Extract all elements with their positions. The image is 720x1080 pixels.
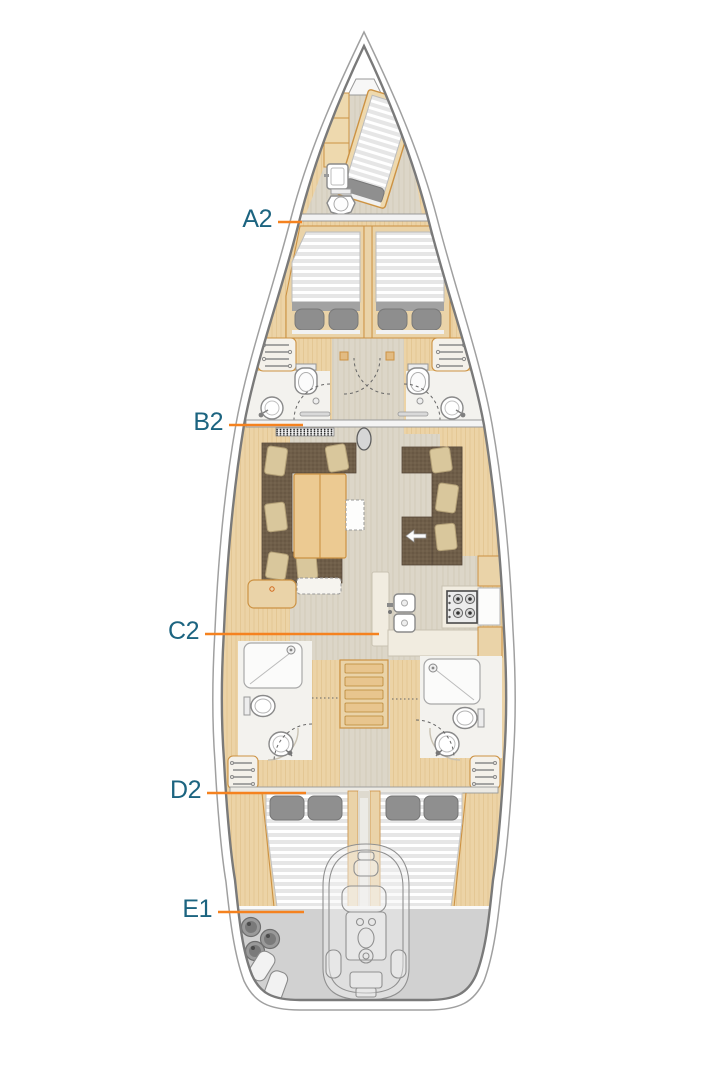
bow-sink-icon xyxy=(324,164,348,189)
stove-icon xyxy=(447,591,477,623)
settee-pillow xyxy=(325,443,349,472)
settee-pillow xyxy=(265,552,289,581)
engine-tender-ghost xyxy=(323,844,409,1000)
port-cabinet xyxy=(248,580,296,608)
aft-pillow xyxy=(386,796,420,820)
door-post xyxy=(386,352,394,360)
stbd-aft-wardrobe xyxy=(470,756,500,789)
stbd-head-toilet-icon xyxy=(407,364,429,394)
label-d2: D2 xyxy=(170,776,201,804)
aft-pillow xyxy=(270,796,304,820)
shower-rail xyxy=(398,412,428,416)
label-a2: A2 xyxy=(242,205,272,233)
deck-plan-page: A2 B2 C2 D2 E1 xyxy=(0,0,720,1080)
stbd-aft-toilet-icon xyxy=(453,708,484,729)
stbd-sofa-seat xyxy=(402,517,432,565)
settee-pillow xyxy=(264,446,288,477)
settee-pillow xyxy=(435,483,459,514)
label-e1: E1 xyxy=(182,895,212,923)
companionway-stairs xyxy=(340,660,388,728)
port-berth-mattress xyxy=(292,232,360,302)
shower-drain-icon xyxy=(417,398,423,404)
aft-pillow xyxy=(424,796,458,820)
bow-toilet-icon xyxy=(327,189,355,215)
berth-divider xyxy=(364,226,372,338)
sideboard-vent xyxy=(276,428,334,436)
galley-counter xyxy=(388,630,480,656)
fridge xyxy=(478,588,500,625)
shower-drain-icon xyxy=(313,398,319,404)
mast-post xyxy=(357,428,371,450)
label-c2: C2 xyxy=(168,617,199,645)
port-aft-toilet-icon xyxy=(244,696,275,717)
settee-pillow xyxy=(435,523,458,551)
port-shower xyxy=(244,643,302,688)
stbd-shower xyxy=(424,659,480,704)
bulkhead-a xyxy=(296,214,434,221)
berth-pillow xyxy=(412,309,441,330)
salon-pouf xyxy=(297,578,341,594)
port-head-toilet-icon xyxy=(295,364,317,394)
berth-pillow xyxy=(329,309,358,330)
door-post xyxy=(340,352,348,360)
port-aft-wardrobe xyxy=(228,756,258,789)
berth-pillow xyxy=(378,309,407,330)
berth-pillow xyxy=(295,309,324,330)
deck-plan-svg: A2 B2 C2 D2 E1 xyxy=(0,0,720,1080)
label-b2: B2 xyxy=(193,408,223,436)
table-extension xyxy=(346,500,364,530)
aft-pillow xyxy=(308,796,342,820)
shower-rail xyxy=(300,412,330,416)
galley-locker xyxy=(478,627,502,657)
settee-pillow xyxy=(429,447,452,474)
forward-cabin xyxy=(286,226,450,338)
settee-pillow xyxy=(264,502,287,532)
